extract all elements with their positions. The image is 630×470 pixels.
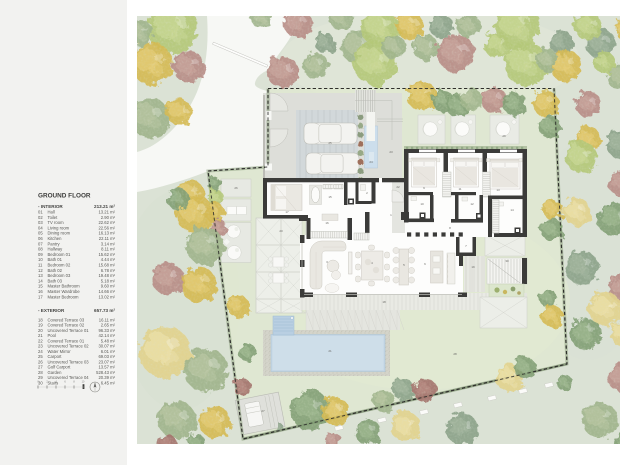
svg-text:16.11 m²: 16.11 m² (99, 317, 116, 322)
svg-text:13: 13 (496, 188, 500, 192)
svg-text:Bedroom 01: Bedroom 01 (48, 252, 71, 257)
svg-text:25: 25 (328, 141, 332, 145)
svg-text:14: 14 (510, 208, 514, 212)
svg-text:21: 21 (328, 349, 332, 353)
svg-text:17: 17 (285, 210, 289, 214)
svg-text:20: 20 (279, 229, 283, 233)
svg-text:Master Bathroom: Master Bathroom (48, 284, 81, 289)
svg-text:06: 06 (38, 236, 43, 241)
svg-text:- EXTERIOR: - EXTERIOR (38, 308, 65, 313)
svg-text:Toilet: Toilet (48, 215, 59, 220)
svg-text:05: 05 (38, 231, 43, 236)
svg-text:19.48 m²: 19.48 m² (98, 273, 115, 278)
svg-text:Garden: Garden (48, 370, 63, 375)
svg-text:23.07 m²: 23.07 m² (98, 359, 115, 364)
svg-text:Bath 03: Bath 03 (48, 278, 63, 283)
svg-text:Uncovered Terrace 01: Uncovered Terrace 01 (48, 328, 90, 333)
svg-text:24: 24 (369, 160, 373, 164)
svg-text:Pantry: Pantry (48, 241, 61, 246)
svg-text:13: 13 (38, 273, 43, 278)
svg-text:TV room: TV room (48, 220, 65, 225)
svg-text:16: 16 (38, 289, 43, 294)
svg-text:02: 02 (38, 215, 43, 220)
svg-text:22: 22 (396, 185, 400, 189)
svg-text:28: 28 (453, 352, 457, 356)
svg-text:09: 09 (38, 252, 43, 257)
svg-text:6.01 m²: 6.01 m² (101, 349, 116, 354)
svg-text:17: 17 (38, 294, 43, 299)
svg-text:5.48 m²: 5.48 m² (101, 338, 116, 343)
svg-text:23: 23 (389, 150, 393, 154)
svg-text:11: 11 (458, 187, 461, 191)
svg-text:12: 12 (38, 268, 43, 273)
svg-text:Covered Terrace 01: Covered Terrace 01 (48, 338, 85, 343)
svg-text:213.21 m²: 213.21 m² (94, 204, 115, 209)
svg-text:30: 30 (505, 259, 509, 263)
svg-text:Master Bedroom: Master Bedroom (48, 294, 79, 299)
svg-text:Water Mirror: Water Mirror (48, 349, 72, 354)
svg-text:18: 18 (38, 317, 43, 322)
svg-text:01: 01 (38, 210, 43, 215)
svg-text:28: 28 (38, 370, 43, 375)
svg-text:18: 18 (382, 300, 386, 304)
svg-text:6.78 m²: 6.78 m² (101, 268, 116, 273)
svg-text:26: 26 (234, 186, 238, 190)
svg-text:Master Wardrobe: Master Wardrobe (48, 289, 81, 294)
svg-text:15.62 m²: 15.62 m² (98, 252, 115, 257)
svg-text:GROUND FLOOR: GROUND FLOOR (38, 193, 91, 200)
svg-text:19: 19 (471, 265, 475, 269)
svg-text:08: 08 (38, 247, 43, 252)
svg-text:Bath 02: Bath 02 (48, 268, 63, 273)
svg-text:2.90 m²: 2.90 m² (101, 215, 116, 220)
svg-text:03: 03 (38, 220, 43, 225)
svg-text:04: 04 (38, 225, 43, 230)
svg-text:Living room: Living room (48, 225, 70, 230)
svg-text:15: 15 (38, 284, 43, 289)
svg-text:5.18 m²: 5.18 m² (101, 278, 116, 283)
svg-text:15.68 m²: 15.68 m² (98, 263, 115, 268)
svg-text:9.60 m²: 9.60 m² (101, 284, 116, 289)
svg-text:24: 24 (38, 349, 43, 354)
svg-text:3.14 m²: 3.14 m² (101, 241, 116, 246)
svg-text:Covered Terrace 03: Covered Terrace 03 (48, 317, 85, 322)
svg-text:13.02 m²: 13.02 m² (98, 294, 115, 299)
svg-text:10: 10 (420, 202, 424, 206)
svg-text:22.62 m²: 22.62 m² (98, 220, 115, 225)
svg-text:657.73 m²: 657.73 m² (94, 308, 115, 313)
svg-text:528.43 m²: 528.43 m² (96, 370, 115, 375)
svg-text:30: 30 (38, 380, 43, 385)
svg-text:22.11 m²: 22.11 m² (99, 236, 116, 241)
svg-text:- INTERIOR: - INTERIOR (38, 204, 63, 209)
svg-text:10: 10 (38, 257, 43, 262)
svg-text:Dining room: Dining room (48, 231, 71, 236)
svg-text:Hall: Hall (48, 210, 55, 215)
svg-text:22.56 m²: 22.56 m² (98, 225, 115, 230)
svg-text:11: 11 (38, 263, 43, 268)
svg-text:22: 22 (38, 338, 43, 343)
svg-text:26: 26 (38, 359, 43, 364)
svg-text:13.21 m²: 13.21 m² (98, 210, 115, 215)
svg-text:29: 29 (502, 134, 506, 138)
svg-text:6.45 m²: 6.45 m² (101, 380, 116, 385)
svg-text:14: 14 (38, 278, 43, 283)
svg-text:20: 20 (38, 328, 43, 333)
svg-text:12: 12 (470, 202, 474, 206)
svg-text:27: 27 (261, 409, 265, 413)
svg-text:Hallway: Hallway (48, 247, 64, 252)
svg-text:16: 16 (325, 221, 329, 225)
svg-text:96.33 m²: 96.33 m² (98, 328, 115, 333)
svg-text:Bath 01: Bath 01 (48, 257, 63, 262)
svg-text:Bedroom 02: Bedroom 02 (48, 263, 71, 268)
svg-text:Kitchen: Kitchen (48, 236, 63, 241)
svg-text:Uncovered Terrace 03: Uncovered Terrace 03 (48, 359, 90, 364)
svg-text:Bedroom 03: Bedroom 03 (48, 273, 71, 278)
svg-text:07: 07 (38, 241, 43, 246)
svg-text:15: 15 (328, 195, 332, 199)
svg-text:4.44 m²: 4.44 m² (101, 257, 116, 262)
svg-text:14.66 m²: 14.66 m² (98, 289, 115, 294)
svg-text:16.13 m²: 16.13 m² (98, 231, 115, 236)
svg-text:8.11 m²: 8.11 m² (101, 247, 115, 252)
